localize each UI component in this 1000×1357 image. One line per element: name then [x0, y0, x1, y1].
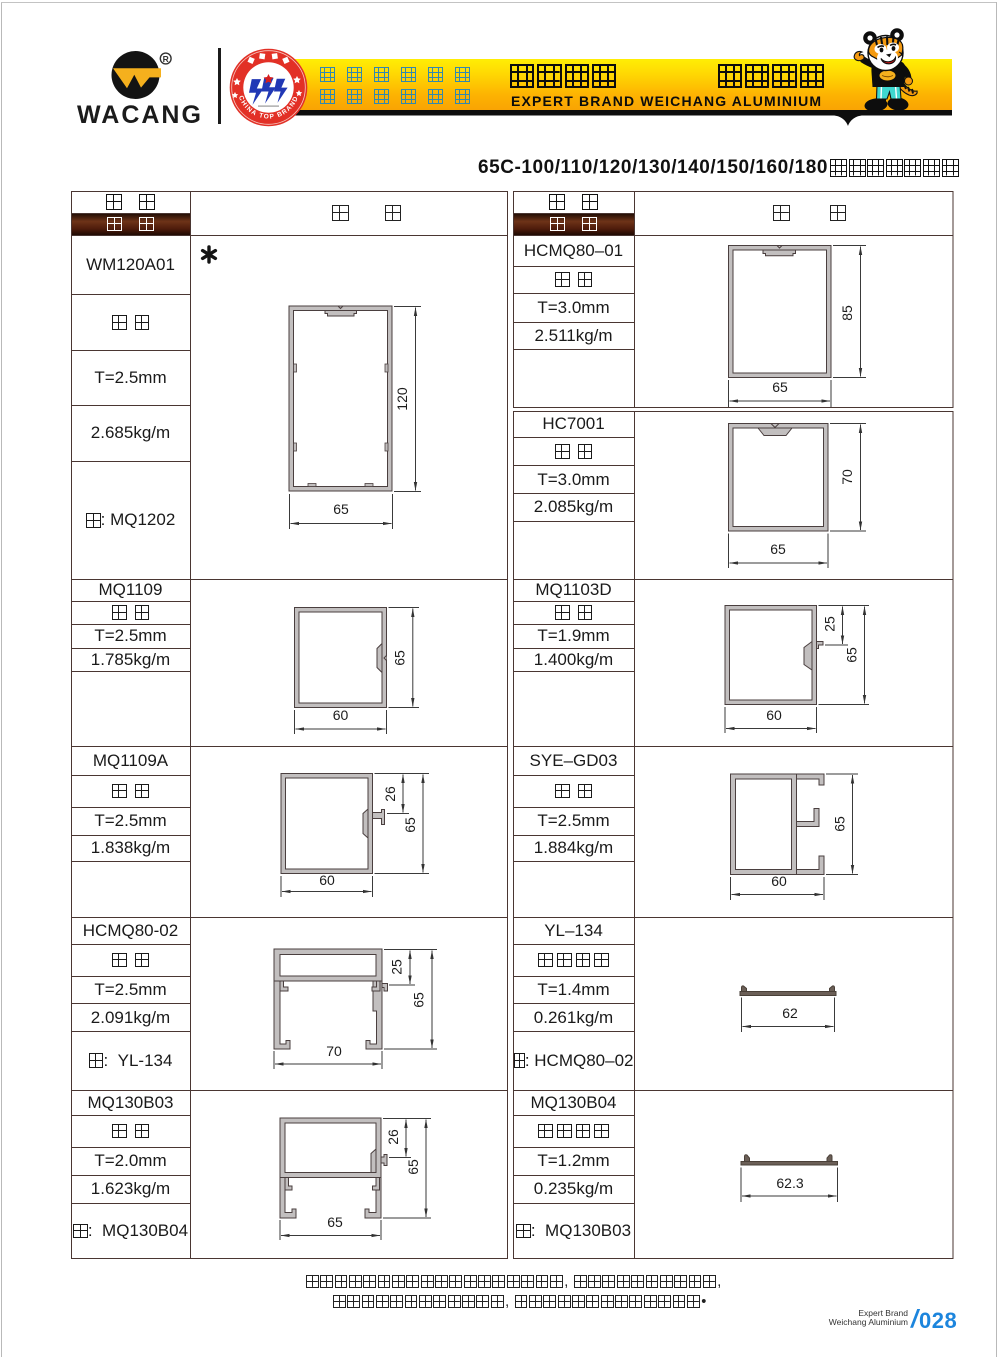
- svg-text:65: 65: [327, 1214, 343, 1230]
- svg-text:26: 26: [385, 1129, 401, 1145]
- svg-text:65: 65: [333, 501, 349, 517]
- svg-text:70: 70: [326, 1043, 342, 1059]
- svg-text:70: 70: [839, 469, 855, 485]
- svg-text:65: 65: [832, 816, 848, 832]
- svg-text:120: 120: [394, 387, 410, 411]
- svg-text:60: 60: [319, 872, 335, 888]
- svg-text:25: 25: [822, 616, 838, 632]
- svg-text:62: 62: [782, 1005, 798, 1021]
- svg-text:60: 60: [766, 707, 782, 723]
- svg-text:60: 60: [333, 707, 349, 723]
- svg-text:65: 65: [770, 541, 786, 557]
- svg-text:65: 65: [772, 379, 788, 395]
- svg-text:65: 65: [411, 992, 427, 1008]
- svg-text:60: 60: [771, 873, 787, 889]
- svg-text:25: 25: [389, 959, 405, 975]
- svg-text:65: 65: [402, 817, 418, 833]
- svg-text:65: 65: [844, 647, 860, 663]
- svg-text:85: 85: [839, 305, 855, 321]
- svg-text:62.3: 62.3: [776, 1175, 803, 1191]
- svg-text:65: 65: [392, 650, 408, 666]
- svg-text:26: 26: [382, 786, 398, 802]
- svg-text:65: 65: [405, 1159, 421, 1175]
